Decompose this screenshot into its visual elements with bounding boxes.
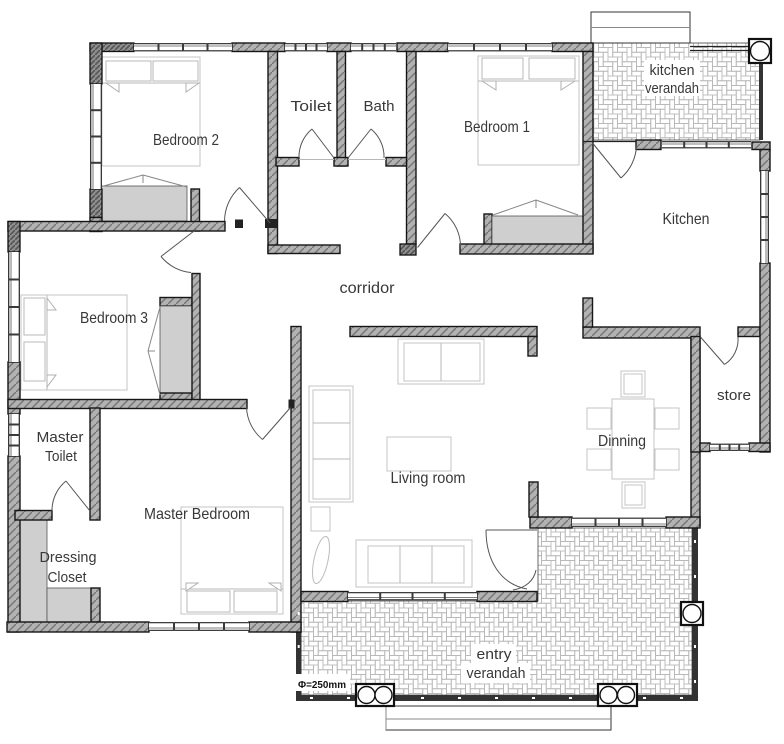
svg-text:Bedroom 3: Bedroom 3: [80, 310, 148, 327]
svg-text:Kitchen: Kitchen: [663, 211, 710, 228]
svg-text:Bath: Bath: [364, 98, 395, 115]
svg-text:Φ=250mm: Φ=250mm: [298, 679, 346, 691]
svg-text:Bedroom 1: Bedroom 1: [464, 119, 530, 136]
svg-text:Closet: Closet: [48, 569, 88, 586]
svg-text:Master: Master: [37, 429, 84, 446]
svg-text:Living room: Living room: [391, 470, 466, 487]
svg-text:corridor: corridor: [340, 280, 396, 297]
svg-text:Toilet: Toilet: [45, 448, 78, 465]
svg-text:Master Bedroom: Master Bedroom: [144, 506, 250, 523]
svg-text:verandah: verandah: [645, 80, 699, 97]
svg-text:Bedroom 2: Bedroom 2: [153, 132, 219, 149]
svg-text:Dressing: Dressing: [40, 549, 97, 566]
svg-text:entry: entry: [477, 646, 513, 663]
svg-text:store: store: [717, 387, 751, 404]
svg-text:kitchen: kitchen: [650, 62, 695, 79]
svg-text:verandah: verandah: [467, 665, 526, 682]
svg-text:Toilet: Toilet: [291, 98, 333, 115]
svg-text:Dinning: Dinning: [598, 433, 646, 450]
